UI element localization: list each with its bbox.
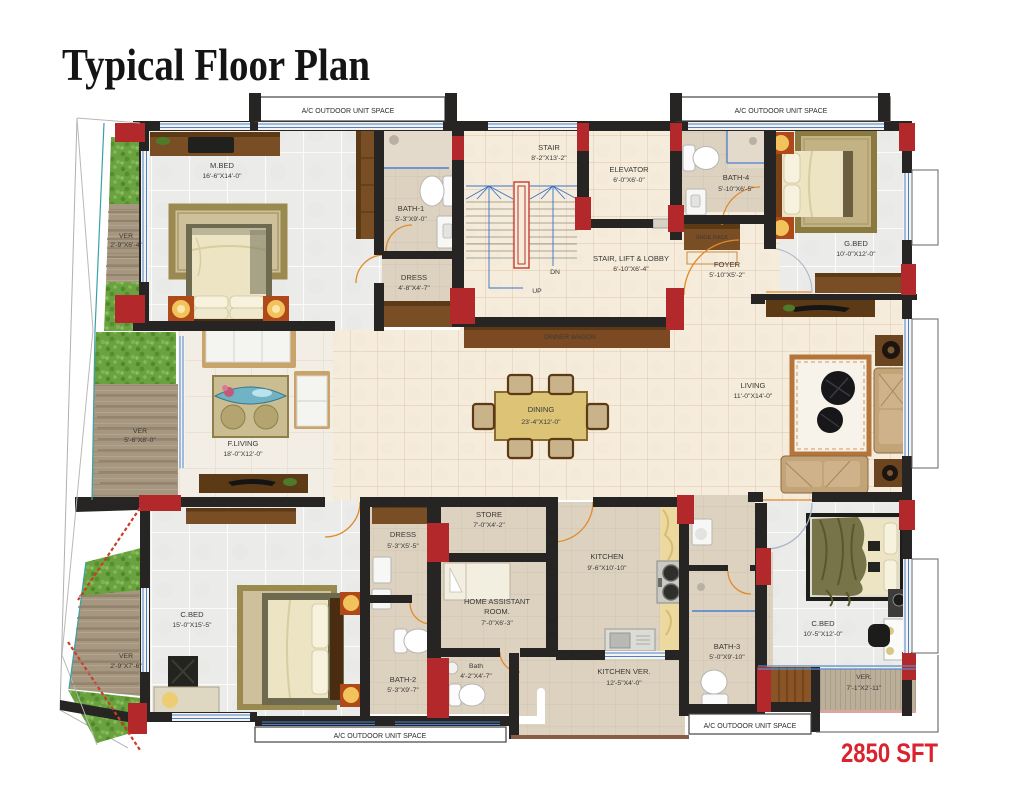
svg-text:VER: VER — [119, 233, 133, 240]
svg-text:5'-3"X5'-5": 5'-3"X5'-5" — [387, 543, 419, 550]
svg-text:4'-8"X4'-7": 4'-8"X4'-7" — [398, 285, 430, 292]
svg-text:VER: VER — [133, 428, 147, 435]
svg-text:2850 SFT: 2850 SFT — [841, 738, 938, 768]
svg-text:KITCHEN: KITCHEN — [590, 552, 623, 561]
svg-text:6'-0"X6'-0": 6'-0"X6'-0" — [613, 177, 645, 184]
svg-text:5'-0"X9'-10": 5'-0"X9'-10" — [709, 654, 745, 661]
svg-text:ROOM.: ROOM. — [484, 607, 510, 616]
svg-text:Typical Floor Plan: Typical Floor Plan — [62, 39, 370, 90]
svg-text:DINNER WAGON: DINNER WAGON — [544, 334, 596, 341]
svg-text:10'-5"X12'-0": 10'-5"X12'-0" — [803, 631, 843, 638]
svg-text:2'-9"X7'-6": 2'-9"X7'-6" — [110, 663, 142, 670]
svg-text:ELEVATOR: ELEVATOR — [609, 165, 649, 174]
svg-text:BATH-4: BATH-4 — [723, 173, 749, 182]
svg-text:HOME ASSISTANT: HOME ASSISTANT — [464, 597, 530, 606]
svg-text:7'-0"X6'-3": 7'-0"X6'-3" — [481, 620, 513, 627]
svg-text:STORE: STORE — [476, 510, 502, 519]
svg-text:DN: DN — [550, 269, 560, 276]
svg-text:9'-6"X10'-10": 9'-6"X10'-10" — [587, 565, 627, 572]
svg-text:C.BED: C.BED — [811, 619, 835, 628]
svg-text:UP: UP — [532, 288, 542, 295]
svg-text:DRESS: DRESS — [390, 530, 416, 539]
svg-text:VER.: VER. — [856, 674, 872, 681]
svg-text:5'-10"X6'-5": 5'-10"X6'-5" — [718, 186, 754, 193]
svg-text:2'-9"X6'-4": 2'-9"X6'-4" — [110, 242, 142, 249]
svg-text:STAIR: STAIR — [538, 143, 560, 152]
svg-text:7'-0"X4'-2": 7'-0"X4'-2" — [473, 522, 505, 529]
svg-text:A/C OUTDOOR UNIT SPACE: A/C OUTDOOR UNIT SPACE — [302, 108, 395, 115]
svg-text:7'-1"X2'-11": 7'-1"X2'-11" — [847, 685, 882, 692]
svg-text:18'-0"X12'-0": 18'-0"X12'-0" — [223, 451, 263, 458]
svg-text:5'-6"X8'-0": 5'-6"X8'-0" — [124, 437, 156, 444]
svg-text:Bath: Bath — [469, 663, 483, 670]
svg-text:DRESS: DRESS — [401, 273, 427, 282]
svg-text:STAIR, LIFT & LOBBY: STAIR, LIFT & LOBBY — [593, 254, 669, 263]
svg-text:FOYER: FOYER — [714, 260, 741, 269]
svg-text:C.BED: C.BED — [180, 610, 204, 619]
svg-text:5'-10"X5'-2": 5'-10"X5'-2" — [709, 272, 745, 279]
svg-text:VER: VER — [119, 653, 133, 660]
svg-text:KITCHEN VER.: KITCHEN VER. — [597, 667, 650, 676]
svg-text:F.LIVING: F.LIVING — [228, 439, 259, 448]
svg-text:10'-0"X12'-0": 10'-0"X12'-0" — [836, 251, 876, 258]
svg-text:12'-5"X4'-0": 12'-5"X4'-0" — [606, 680, 642, 687]
svg-text:DINING: DINING — [528, 405, 555, 414]
svg-text:16'-6"X14'-0": 16'-6"X14'-0" — [202, 173, 242, 180]
svg-text:M.BED: M.BED — [210, 161, 235, 170]
svg-text:8'-2"X13'-2": 8'-2"X13'-2" — [531, 155, 567, 162]
svg-text:BATH-3: BATH-3 — [714, 642, 740, 651]
svg-text:A/C OUTDOOR UNIT SPACE: A/C OUTDOOR UNIT SPACE — [704, 723, 797, 730]
svg-text:11'-0"X14'-0": 11'-0"X14'-0" — [734, 393, 773, 400]
svg-text:BATH-2: BATH-2 — [390, 675, 416, 684]
svg-text:A/C OUTDOOR UNIT SPACE: A/C OUTDOOR UNIT SPACE — [735, 108, 828, 115]
svg-text:A/C OUTDOOR UNIT SPACE: A/C OUTDOOR UNIT SPACE — [334, 733, 427, 740]
svg-text:SHOE RACK: SHOE RACK — [696, 235, 729, 241]
svg-text:5'-3"X9'-0": 5'-3"X9'-0" — [395, 216, 427, 223]
svg-text:6'-10"X6'-4": 6'-10"X6'-4" — [613, 266, 649, 273]
svg-text:LIVING: LIVING — [741, 381, 766, 390]
svg-text:G.BED: G.BED — [844, 239, 868, 248]
svg-text:23'-4"X12'-0": 23'-4"X12'-0" — [521, 419, 561, 426]
svg-text:15'-0"X15'-5": 15'-0"X15'-5" — [172, 622, 212, 629]
svg-text:5'-3"X9'-7": 5'-3"X9'-7" — [387, 687, 419, 694]
svg-text:BATH-1: BATH-1 — [398, 204, 424, 213]
svg-text:4'-2"X4'-7": 4'-2"X4'-7" — [460, 673, 492, 680]
